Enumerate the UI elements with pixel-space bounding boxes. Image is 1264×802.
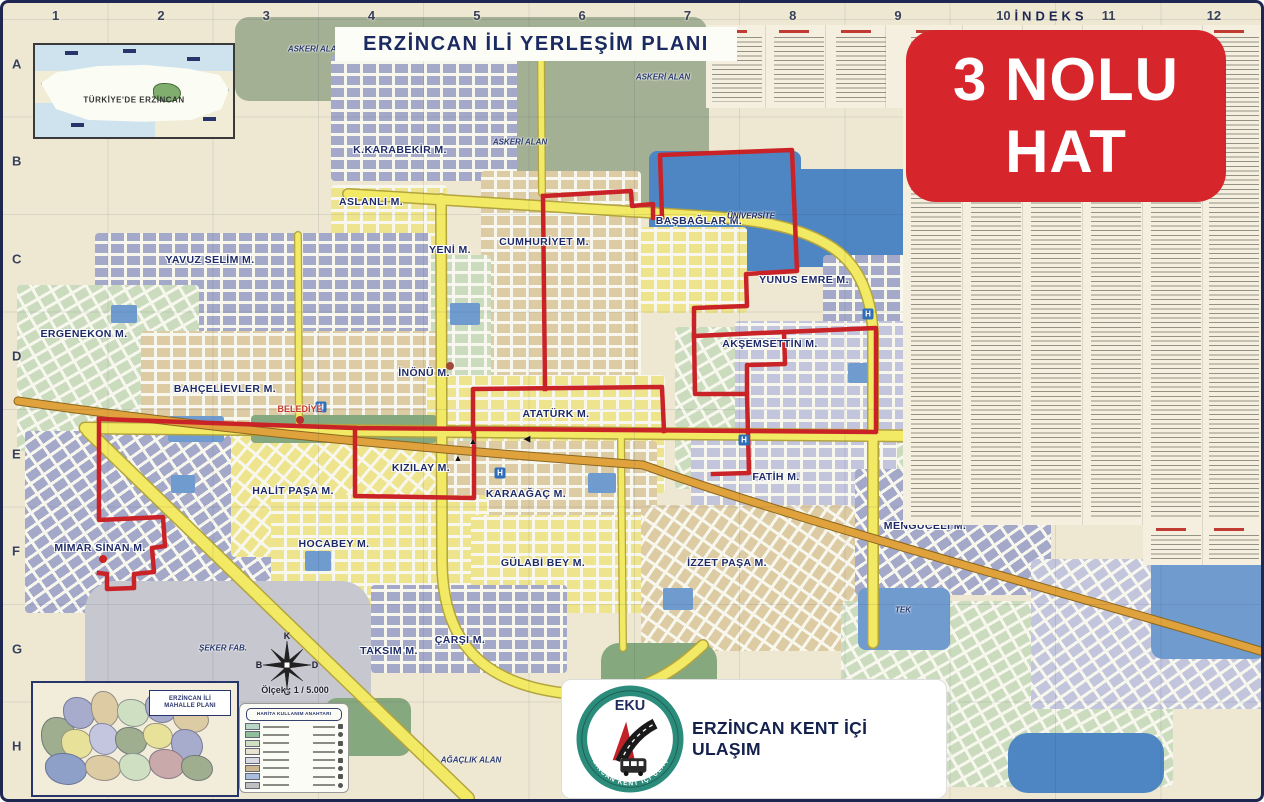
- compass-west-letter: B: [256, 660, 263, 670]
- mahalle-inset-label-line1: ERZİNCAN İLİ: [169, 696, 211, 703]
- compass-north-letter: K: [284, 631, 291, 641]
- grid-column-label: 6: [579, 8, 586, 23]
- grid-column-label: 5: [473, 8, 480, 23]
- map-caption-dash: [65, 51, 78, 55]
- legend-rows: [245, 724, 343, 788]
- mahalle-polygon: [149, 749, 185, 779]
- grid-column-label: 12: [1207, 8, 1221, 23]
- transit-authority-box: ERZİNCAN KENT İÇİ ULAŞIM EKU ERZİNCAN KE…: [561, 679, 947, 799]
- legend-row: [245, 783, 289, 788]
- map-title-bar: ERZİNCAN İLİ YERLEŞİM PLANI: [335, 27, 737, 61]
- grid-row-label: C: [12, 251, 21, 266]
- grid-column-label: 8: [789, 8, 796, 23]
- transit-authority-name: ERZİNCAN KENT İÇİ ULAŞIM: [692, 718, 940, 760]
- index-heading: İNDEKS: [1014, 9, 1087, 24]
- legend-row: [245, 758, 289, 763]
- turkey-inset-label: TÜRKİYE'DE ERZİNCAN: [83, 96, 184, 105]
- mahalle-polygon: [119, 753, 151, 781]
- legend-row: [313, 783, 343, 788]
- legend-row: [245, 724, 289, 729]
- route-3-badge: 3 NOLU HAT: [906, 30, 1226, 202]
- grid-column-label: 11: [1102, 8, 1116, 23]
- grid-column-label: 7: [684, 8, 691, 23]
- legend-icon-column: [313, 724, 343, 788]
- map-legend: HARİTA KULLANIM ANAHTARI: [239, 703, 349, 793]
- grid-column-label: 9: [894, 8, 901, 23]
- grid-row-label: A: [12, 56, 21, 71]
- grid-row-label: F: [12, 544, 20, 559]
- grid-column-label: 3: [263, 8, 270, 23]
- map-scale: Ölçek : 1 / 5.000: [235, 685, 355, 695]
- route-badge-line2: HAT: [1005, 116, 1127, 188]
- mahalle-polygon: [85, 755, 121, 781]
- legend-row: [313, 749, 343, 754]
- map-caption-dash: [203, 117, 216, 121]
- grid-column-label: 10: [996, 8, 1010, 23]
- legend-row: [313, 732, 343, 737]
- legend-row: [245, 766, 289, 771]
- legend-row: [245, 774, 289, 779]
- legend-row: [313, 758, 343, 763]
- grid-column-label: 2: [157, 8, 164, 23]
- mahalle-polygon: [143, 723, 173, 749]
- legend-row: [313, 774, 343, 779]
- legend-row: [313, 741, 343, 746]
- legend-row: [245, 732, 289, 737]
- turkey-locator-inset: TÜRKİYE'DE ERZİNCAN: [33, 43, 235, 139]
- map-caption-dash: [187, 57, 200, 61]
- eku-logo: ERZİNCAN KENT İÇİ ULAŞIM EKU: [576, 685, 684, 793]
- mahalle-plan-inset: ERZİNCAN İLİ MAHALLE PLANI: [31, 681, 239, 797]
- grid-row-label: H: [12, 739, 21, 754]
- legend-row: [313, 766, 343, 771]
- erzincan-city-map: HHHH▲▲◀ K.KARABEKİR M.ASLANLI M.YENİ M.C…: [0, 0, 1264, 802]
- route-badge-line1: 3 NOLU: [953, 44, 1179, 116]
- grid-row-label: E: [12, 446, 21, 461]
- mahalle-polygon: [91, 691, 119, 727]
- map-caption-dash: [71, 123, 84, 127]
- grid-row-label: D: [12, 349, 21, 364]
- grid-column-label: 4: [368, 8, 375, 23]
- legend-row: [245, 749, 289, 754]
- mahalle-polygon: [181, 755, 213, 781]
- legend-swatch-column: [245, 724, 289, 788]
- mahalle-polygon: [45, 753, 87, 785]
- map-title: ERZİNCAN İLİ YERLEŞİM PLANI: [363, 33, 709, 56]
- legend-title: HARİTA KULLANIM ANAHTARI: [246, 708, 342, 721]
- grid-row-label: G: [12, 641, 22, 656]
- legend-row: [245, 741, 289, 746]
- grid-column-label: 1: [52, 8, 59, 23]
- map-caption-dash: [123, 49, 136, 53]
- eku-abbr: EKU: [615, 698, 646, 714]
- grid-row-label: B: [12, 154, 21, 169]
- mahalle-inset-label-box: ERZİNCAN İLİ MAHALLE PLANI: [149, 690, 231, 716]
- compass-east-letter: D: [312, 660, 319, 670]
- mahalle-inset-label-line2: MAHALLE PLANI: [164, 703, 216, 710]
- legend-row: [313, 724, 343, 729]
